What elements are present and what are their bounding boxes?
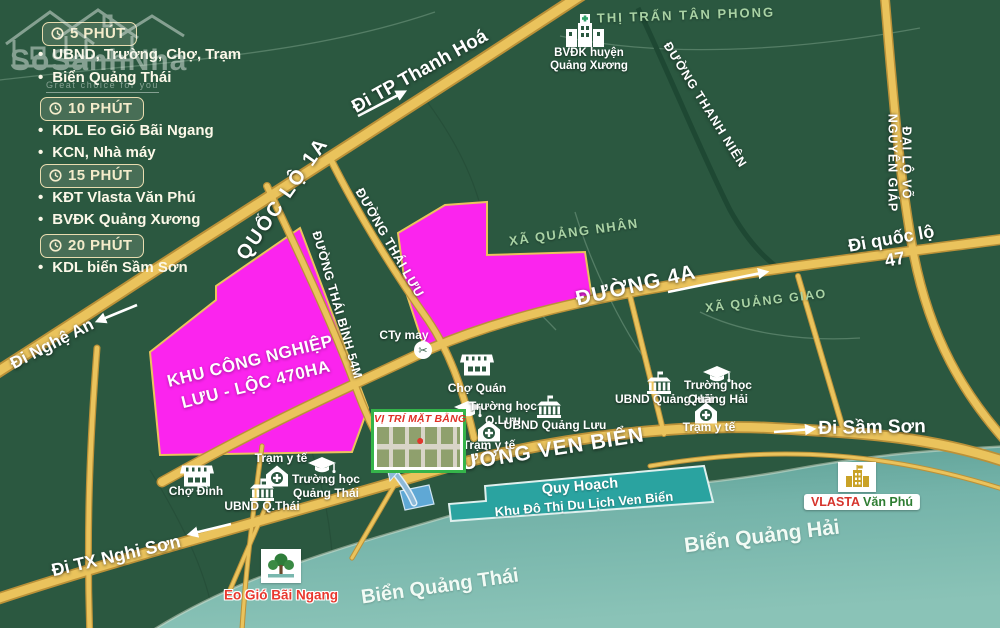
legend-badge-10min: 10 PHÚT [40, 97, 144, 121]
legend-item: Biển Quảng Thái [38, 69, 171, 86]
government-building-icon [645, 372, 673, 395]
landmark-label-cho-dinh: Chợ Đình [169, 485, 224, 499]
government-building-icon [248, 479, 276, 502]
legend-badge-label: 20 PHÚT [68, 237, 133, 254]
legend-item: UBND, Trường, Chợ, Trạm [38, 46, 241, 63]
map-canvas [0, 0, 1000, 628]
vlasta-brand-text: VLASTA [811, 495, 860, 509]
landmark-label-cho-quan: Chợ Quán [448, 382, 507, 396]
eo-gio-tree-icon [261, 549, 301, 583]
legend-item: BVĐK Quảng Xương [38, 211, 200, 228]
landmark-label-ubnd-quang-luu: UBND Quảng Lưu [504, 419, 607, 433]
legend-badge-label: 5 PHÚT [70, 25, 126, 42]
site-aerial-photo [377, 427, 460, 467]
legend-item: KDL Eo Gió Bãi Ngang [38, 122, 214, 139]
garment-factory-icon: ✂ [414, 341, 432, 359]
site-location-title: VỊ TRÍ MẶT BẰNG [374, 412, 463, 425]
legend-badge-15min: 15 PHÚT [40, 164, 144, 188]
clock-icon [49, 169, 62, 182]
landmark-label-vlasta: VLASTA Văn Phú [804, 494, 920, 510]
hospital-icon [564, 14, 606, 48]
clock-icon [49, 239, 62, 252]
landmark-label-bvdk: BVĐK huyện Quảng Xương [550, 47, 628, 73]
direction-label-sam-son: Đi Sầm Sơn [818, 416, 926, 440]
clock-icon [49, 102, 62, 115]
legend-badge-label: 10 PHÚT [68, 100, 133, 117]
landmark-label-tram-y-te-qhai: Trạm y tế [683, 421, 736, 435]
landmark-label-ubnd-qthai: UBND Q.Thái [224, 500, 299, 514]
government-building-icon [535, 396, 563, 419]
landmark-label-truong-hoc-qthai: Trường học Quảng Thái [292, 473, 360, 501]
legend-badge-20min: 20 PHÚT [40, 234, 144, 258]
legend-badge-label: 15 PHÚT [68, 167, 133, 184]
map-poster: SoSanhNha Great choice for you 5 PHÚT UB… [0, 0, 1000, 628]
road-thanh-nien-line [638, 8, 778, 268]
vlasta-building-icon [838, 462, 876, 492]
legend-item: KCN, Nhà máy [38, 144, 156, 161]
road-label-vo-nguyen-giap: ĐẠI LỘ VÕ NGUYÊN GIÁP [885, 113, 914, 214]
legend-badge-5min: 5 PHÚT [42, 22, 137, 46]
site-location-box: VỊ TRÍ MẶT BẰNG [371, 409, 466, 473]
legend-item: KĐT Vlasta Văn Phú [38, 189, 196, 206]
clock-icon [51, 27, 64, 40]
legend-item: KDL biển Sầm Sơn [38, 259, 188, 276]
landmark-label-tram-y-te-qluu: Trạm y tế [463, 439, 516, 453]
landmark-label-eo-gio: Eo Gió Bãi Ngang [224, 588, 338, 603]
vlasta-name-text: Văn Phú [863, 495, 913, 509]
market-icon [460, 351, 494, 378]
